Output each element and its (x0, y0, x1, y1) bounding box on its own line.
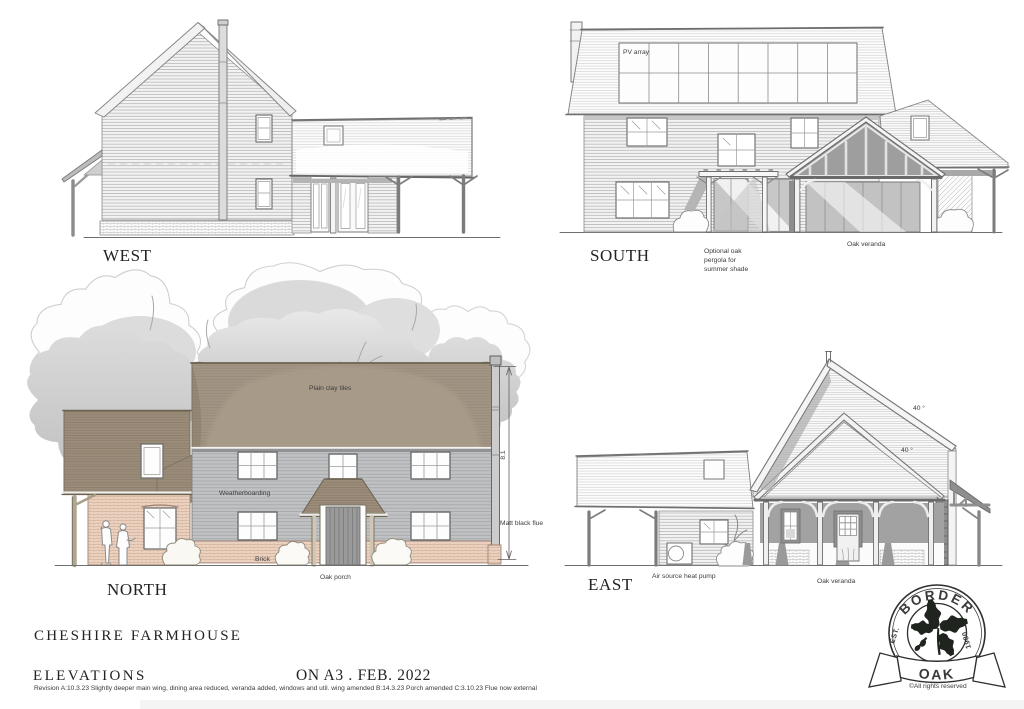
svg-text:Matt black flue: Matt black flue (500, 520, 543, 527)
svg-text:PV array: PV array (623, 49, 650, 56)
svg-text:Optional oak: Optional oak (704, 248, 742, 255)
svg-text:Revision A:10.3.23 Slightly de: Revision A:10.3.23 Slightly deeper main … (34, 685, 537, 692)
svg-text:SOUTH: SOUTH (590, 246, 650, 265)
svg-text:ON A3 . FEB. 2022: ON A3 . FEB. 2022 (296, 667, 431, 684)
svg-text:ELEVATIONS: ELEVATIONS (33, 668, 147, 684)
svg-text:Oak porch: Oak porch (320, 574, 351, 581)
svg-text:8.1: 8.1 (500, 450, 507, 460)
svg-text:summer shade: summer shade (704, 266, 749, 273)
svg-text:OAK: OAK (918, 665, 956, 682)
svg-text:40 °: 40 ° (913, 404, 925, 412)
svg-text:Oak veranda: Oak veranda (817, 578, 856, 585)
svg-text:40 °: 40 ° (901, 446, 913, 454)
svg-text:Oak veranda: Oak veranda (847, 241, 886, 248)
svg-text:pergola for: pergola for (704, 257, 737, 264)
svg-text:©All rights reserved: ©All rights reserved (909, 682, 967, 690)
svg-text:CHESHIRE FARMHOUSE: CHESHIRE FARMHOUSE (34, 628, 242, 644)
svg-text:Plain clay tiles: Plain clay tiles (309, 385, 352, 392)
svg-text:Weatherboarding: Weatherboarding (219, 490, 270, 497)
svg-text:EAST: EAST (588, 575, 633, 594)
svg-text:WEST: WEST (103, 246, 152, 265)
svg-text:NORTH: NORTH (107, 580, 168, 599)
svg-text:Air source heat pump: Air source heat pump (652, 573, 716, 580)
svg-text:Brick: Brick (255, 556, 271, 563)
